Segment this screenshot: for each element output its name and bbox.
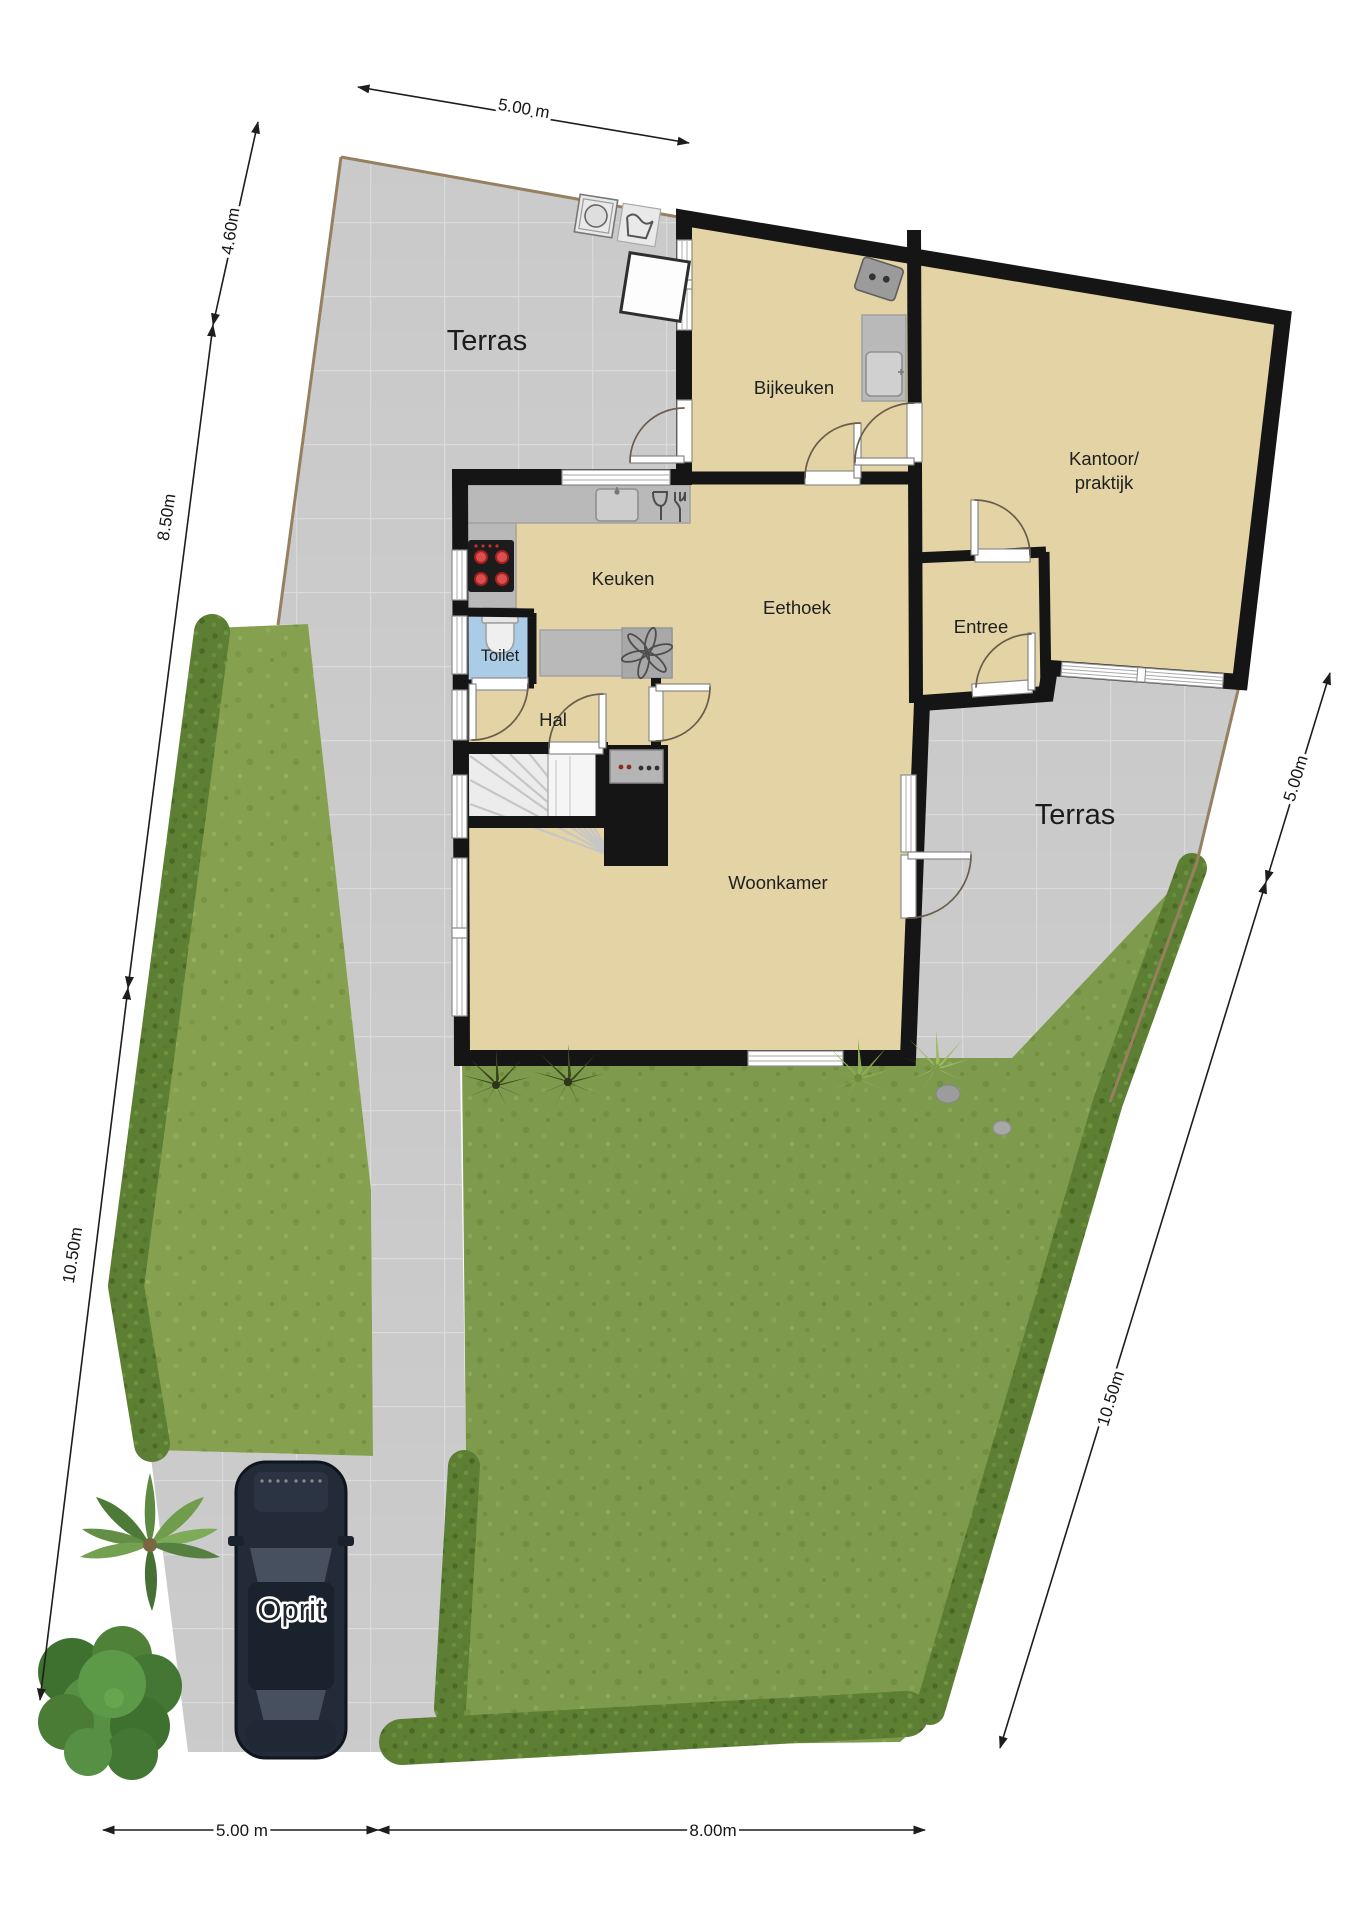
dim-label-bottom-left: 5.00 m [216, 1821, 268, 1840]
stone-icon [993, 1121, 1011, 1135]
room-label-eethoek: Eethoek [763, 597, 832, 618]
room-label-kantoor-line2: praktijk [1075, 472, 1134, 493]
bush-icon [38, 1626, 182, 1780]
dim-line-left-lower [40, 988, 128, 1700]
toilet-room [468, 608, 530, 682]
window-keuken-west [452, 550, 467, 600]
wall-entree-east [1044, 552, 1046, 694]
window-toilet-west [452, 616, 467, 674]
freezer-icon [621, 253, 690, 322]
dim-label-bottom-right: 8.00m [689, 1821, 736, 1840]
stove-icon [604, 745, 668, 866]
dim-label-left-middle: 8.50m [154, 492, 180, 542]
wall-kantoor-west [914, 230, 916, 703]
floorplan-svg: Terras Terras Bijkeuken Kantoor/ praktij… [0, 0, 1358, 1920]
window-woonkamer-south [748, 1051, 843, 1066]
floorplan-page: Terras Terras Bijkeuken Kantoor/ praktij… [0, 0, 1358, 1920]
utility-sink-icon [866, 352, 904, 396]
window-woonkamer-west-1 [452, 775, 467, 838]
dim-label-top: 5.00 m [497, 95, 551, 122]
room-label-toilet: Toilet [481, 647, 520, 665]
room-label-hal: Hal [539, 709, 567, 730]
hedge-driveway-right [450, 1466, 464, 1708]
room-label-kantoor-line1: Kantoor/ [1069, 448, 1140, 469]
dim-label-right-lower: 10.50m [1093, 1369, 1128, 1429]
window-keuken-north [562, 470, 670, 485]
label-terrace-right: Terras [1035, 799, 1116, 831]
washing-machine-icon [574, 194, 617, 237]
window-woonkamer-west-2 [452, 858, 467, 1016]
room-label-woonkamer: Woonkamer [728, 872, 827, 893]
dryer-icon [617, 203, 660, 246]
label-terrace-top: Terras [447, 325, 528, 357]
window-hal-west [452, 690, 467, 740]
kitchen-sink-icon [596, 487, 638, 521]
dim-label-left-lower: 10.50m [59, 1226, 86, 1285]
room-label-entree: Entree [954, 616, 1009, 637]
stone-icon [936, 1085, 960, 1103]
hedge-garden-bottom [402, 1714, 906, 1742]
cooktop-icon [468, 540, 514, 592]
dim-label-right-upper: 5.00m [1280, 753, 1312, 804]
window-woonkamer-east [901, 775, 916, 852]
room-label-keuken: Keuken [592, 568, 655, 589]
dim-label-left-upper: 4.60m [218, 206, 244, 256]
room-label-bijkeuken: Bijkeuken [754, 377, 834, 398]
label-oprit: Oprit [257, 1592, 325, 1627]
